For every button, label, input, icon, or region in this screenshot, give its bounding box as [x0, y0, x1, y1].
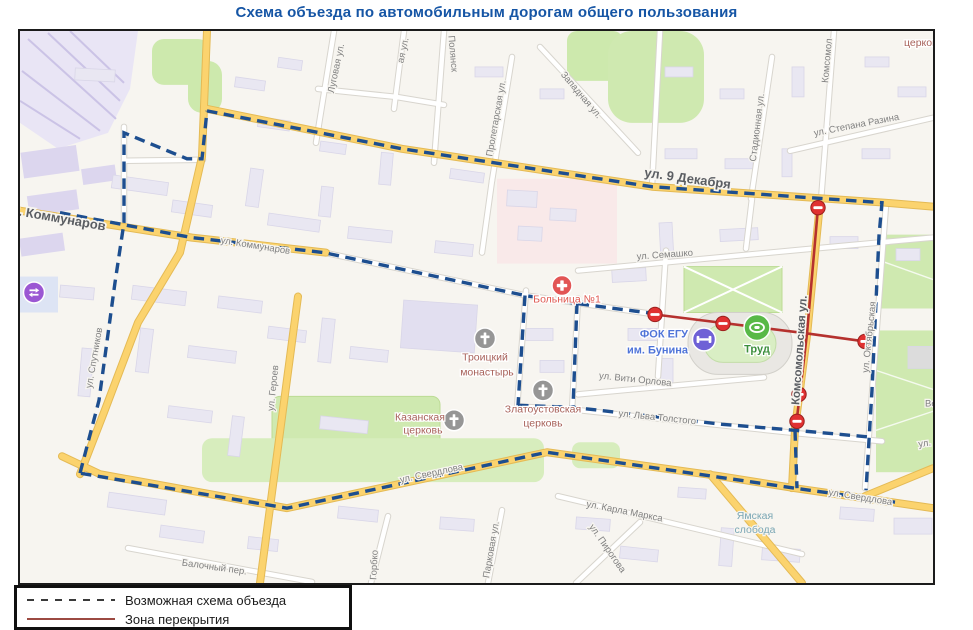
poi-label-church-ne: церковь — [904, 38, 933, 49]
church-icon — [444, 410, 465, 431]
church-icon — [533, 380, 554, 401]
no-entry-icon — [716, 316, 730, 330]
street-label-gorbko: Горбко — [368, 550, 381, 581]
poi-label-kazan-line2: церковь — [403, 425, 443, 436]
street-label-ve-fragment: Ве — [925, 398, 933, 409]
no-entry-icon — [811, 200, 825, 214]
poi-label-hospital: Больница №1 — [533, 295, 601, 306]
no-entry-icon — [648, 307, 662, 321]
poi-label-troitsky-line1: Троицкий — [462, 352, 508, 363]
page-title: Схема объезда по автомобильным дорогам о… — [0, 4, 973, 21]
poi-label-kazan-line1: Казанская — [395, 412, 445, 423]
poi-label-yamskaya-line2: слобода — [735, 524, 776, 536]
hospital-icon — [552, 276, 572, 296]
poi-label-zlatoust-line2: церковь — [523, 418, 563, 429]
legend-detour-row: Возможная схема объезда — [27, 592, 339, 608]
transit-station-icon — [24, 282, 45, 303]
no-entry-icon — [790, 414, 804, 428]
stadium-icon — [744, 314, 770, 340]
poi-label-zlatoust-line1: Златоустовская — [505, 404, 581, 415]
detour-map-svg: ул. Коммунаров ул. Коммунаров ул. 9 Дека… — [20, 31, 933, 583]
closure-line-sample — [27, 618, 115, 621]
legend-detour-label: Возможная схема объезда — [125, 593, 286, 608]
detour-line-sample — [27, 599, 115, 601]
poi-label-troitsky-line2: монастырь — [460, 367, 514, 378]
church-icon — [475, 328, 496, 349]
poi-label-fok-line1: ФОК ЕГУ — [640, 328, 688, 340]
legend-closure-label: Зона перекрытия — [125, 612, 229, 627]
map-canvas[interactable]: ул. Коммунаров ул. Коммунаров ул. 9 Дека… — [18, 29, 935, 585]
street-label-ul-fragment: ул. — [918, 437, 932, 450]
legend: Возможная схема объезда Зона перекрытия — [14, 585, 352, 630]
legend-closure-row: Зона перекрытия — [27, 611, 339, 627]
square-park — [684, 267, 782, 313]
poi-label-trud: Труд — [744, 343, 770, 355]
poi-label-fok-line2: им. Бунина — [627, 344, 689, 356]
poi-label-yamskaya-line1: Ямская — [737, 511, 773, 522]
fitness-icon — [693, 328, 716, 351]
